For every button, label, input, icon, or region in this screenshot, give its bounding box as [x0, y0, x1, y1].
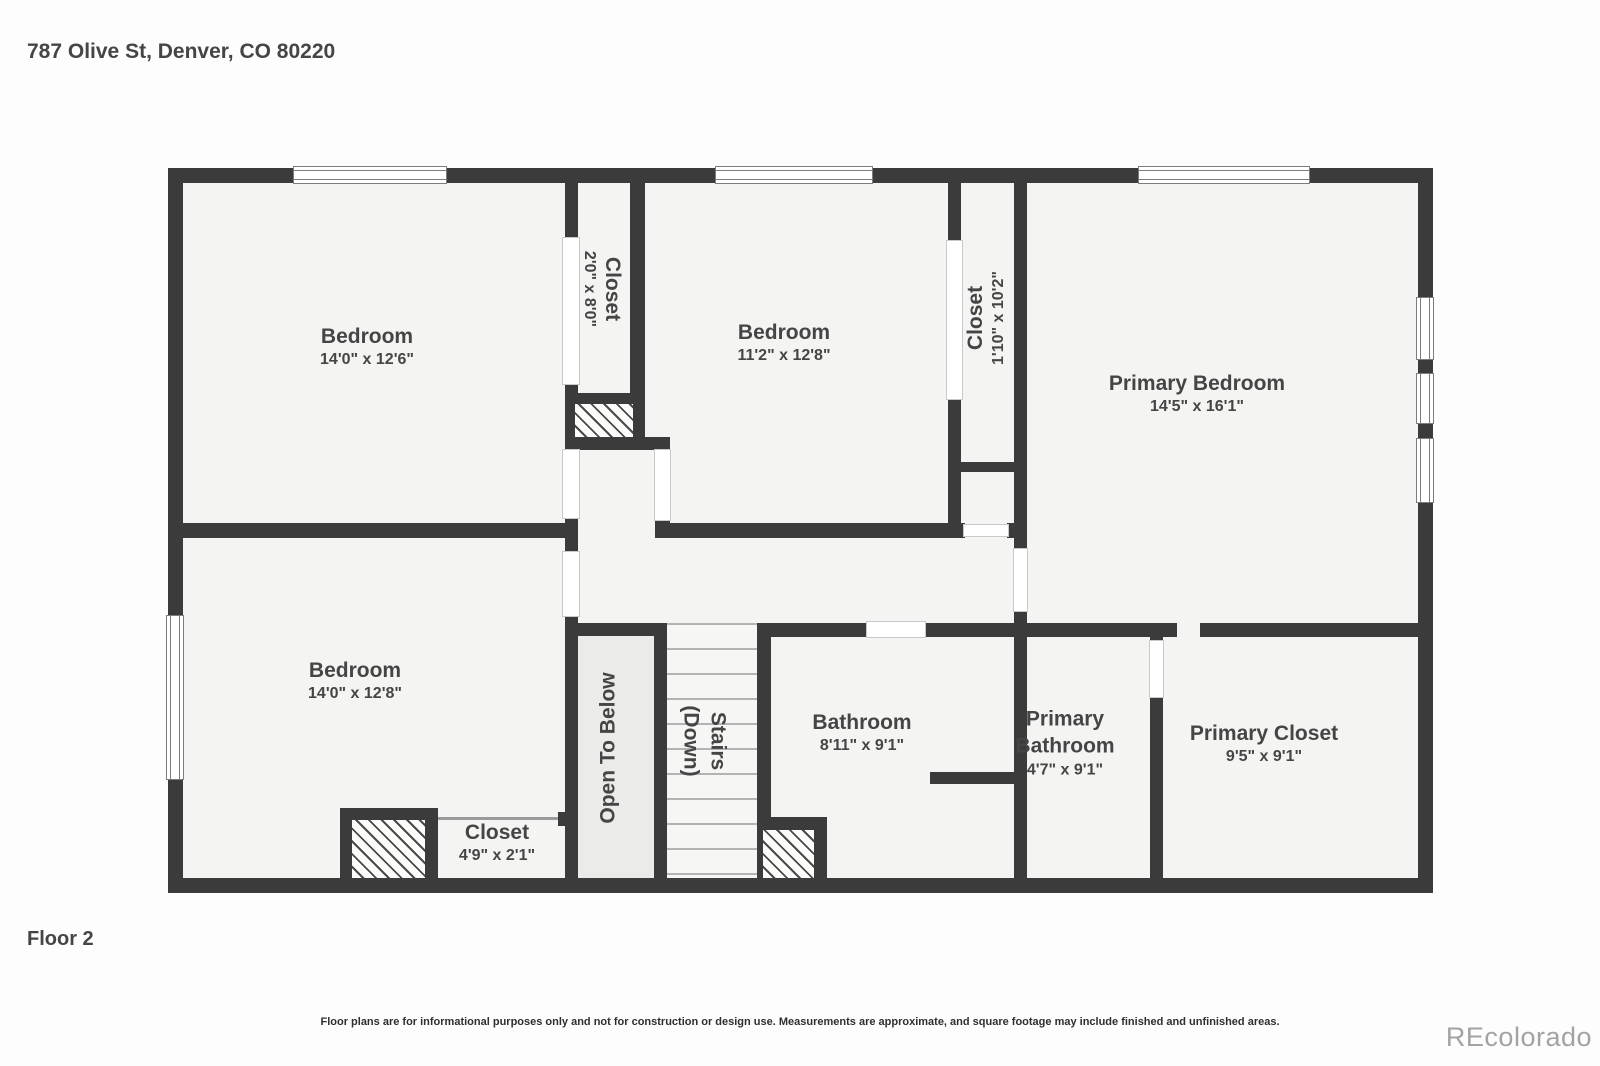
door-opening — [1013, 548, 1028, 612]
chimney-hatch — [575, 404, 633, 437]
room-name: Open To Below — [594, 672, 621, 823]
disclaimer: Floor plans are for informational purpos… — [320, 1016, 1279, 1028]
room-label-open-to-below: Open To Below — [594, 672, 621, 823]
wall — [1418, 168, 1433, 893]
door-opening — [562, 449, 580, 519]
room-label-bedroom1: Bedroom 14'0" x 12'6" — [320, 323, 414, 371]
room-name: Primary Closet — [1190, 720, 1338, 747]
page-title: 787 Olive St, Denver, CO 80220 — [27, 40, 335, 64]
room-dims: 1'10" x 10'2" — [989, 271, 1010, 365]
room-dims: 11'2" x 12'8" — [737, 346, 830, 367]
wall — [565, 623, 667, 636]
window — [1416, 438, 1434, 503]
room-name: Closet — [962, 271, 989, 365]
room-name: Closet — [599, 251, 626, 327]
window — [166, 615, 184, 780]
room-name: Primary Bedroom — [1109, 370, 1285, 397]
wall — [1200, 623, 1418, 637]
door-opening — [1149, 640, 1164, 698]
wall — [654, 623, 667, 878]
wall — [814, 817, 827, 878]
wall — [340, 808, 438, 820]
room-label-closet3: Closet 4'9" x 2'1" — [459, 819, 535, 867]
room-dims: 9'5" x 9'1" — [1190, 747, 1338, 768]
room-name: Bedroom — [320, 323, 414, 350]
room-name: Closet — [459, 819, 535, 846]
door-opening — [866, 621, 926, 638]
room-name: Bedroom — [737, 319, 830, 346]
wall — [1007, 523, 1027, 538]
room-dims: 8'11" x 9'1" — [812, 736, 911, 757]
room-label-primary-bedroom: Primary Bedroom 14'5" x 16'1" — [1109, 370, 1285, 418]
room-dims: 4'9" x 2'1" — [459, 846, 535, 867]
chimney-hatch — [763, 830, 814, 878]
wall — [655, 523, 965, 538]
wall — [168, 523, 578, 538]
room-name: Stairs — [704, 705, 731, 776]
window — [293, 166, 447, 184]
wall — [757, 623, 1177, 637]
window — [1416, 297, 1434, 360]
floor-label: Floor 2 — [27, 928, 94, 951]
room-label-bathroom: Bathroom 8'11" x 9'1" — [812, 709, 911, 757]
room-label-closet1: Closet 2'0" x 8'0" — [578, 251, 626, 327]
door-opening — [963, 524, 1009, 537]
room-sub: (Down) — [677, 705, 704, 776]
room-dims: 14'0" x 12'8" — [308, 684, 402, 705]
chimney-hatch — [352, 820, 425, 878]
room-name: Bathroom — [812, 709, 911, 736]
room-label-closet2: Closet 1'10" x 10'2" — [962, 271, 1010, 365]
room-dims: 4'7" x 9'1" — [995, 760, 1135, 781]
wall — [948, 462, 1027, 472]
room-dims: 14'0" x 12'6" — [320, 350, 414, 371]
window — [1416, 373, 1434, 424]
door-opening — [562, 551, 580, 617]
wall — [425, 820, 438, 878]
wall — [1014, 183, 1027, 553]
room-dims: 14'5" x 16'1" — [1109, 397, 1285, 418]
room-label-stairs: Stairs (Down) — [677, 705, 732, 776]
wall — [558, 812, 578, 826]
wall — [340, 808, 352, 878]
room-label-bedroom3: Bedroom 14'0" x 12'8" — [308, 657, 402, 705]
door-opening — [654, 449, 671, 521]
room-label-primary-bathroom: Primary Bathroom 4'7" x 9'1" — [995, 705, 1135, 780]
window — [715, 166, 873, 184]
floor-plan-page: 787 Olive St, Denver, CO 80220 — [0, 0, 1600, 1066]
door-opening — [946, 240, 963, 400]
room-name: Bedroom — [308, 657, 402, 684]
wall — [565, 393, 643, 404]
room-label-bedroom2: Bedroom 11'2" x 12'8" — [737, 319, 830, 367]
wall — [168, 878, 1433, 893]
room-label-primary-closet: Primary Closet 9'5" x 9'1" — [1190, 720, 1338, 768]
room-dims: 2'0" x 8'0" — [578, 251, 599, 327]
watermark-recolorado: REcolorado — [1446, 1022, 1592, 1053]
room-name: Primary Bathroom — [995, 705, 1135, 760]
window — [1138, 166, 1310, 184]
